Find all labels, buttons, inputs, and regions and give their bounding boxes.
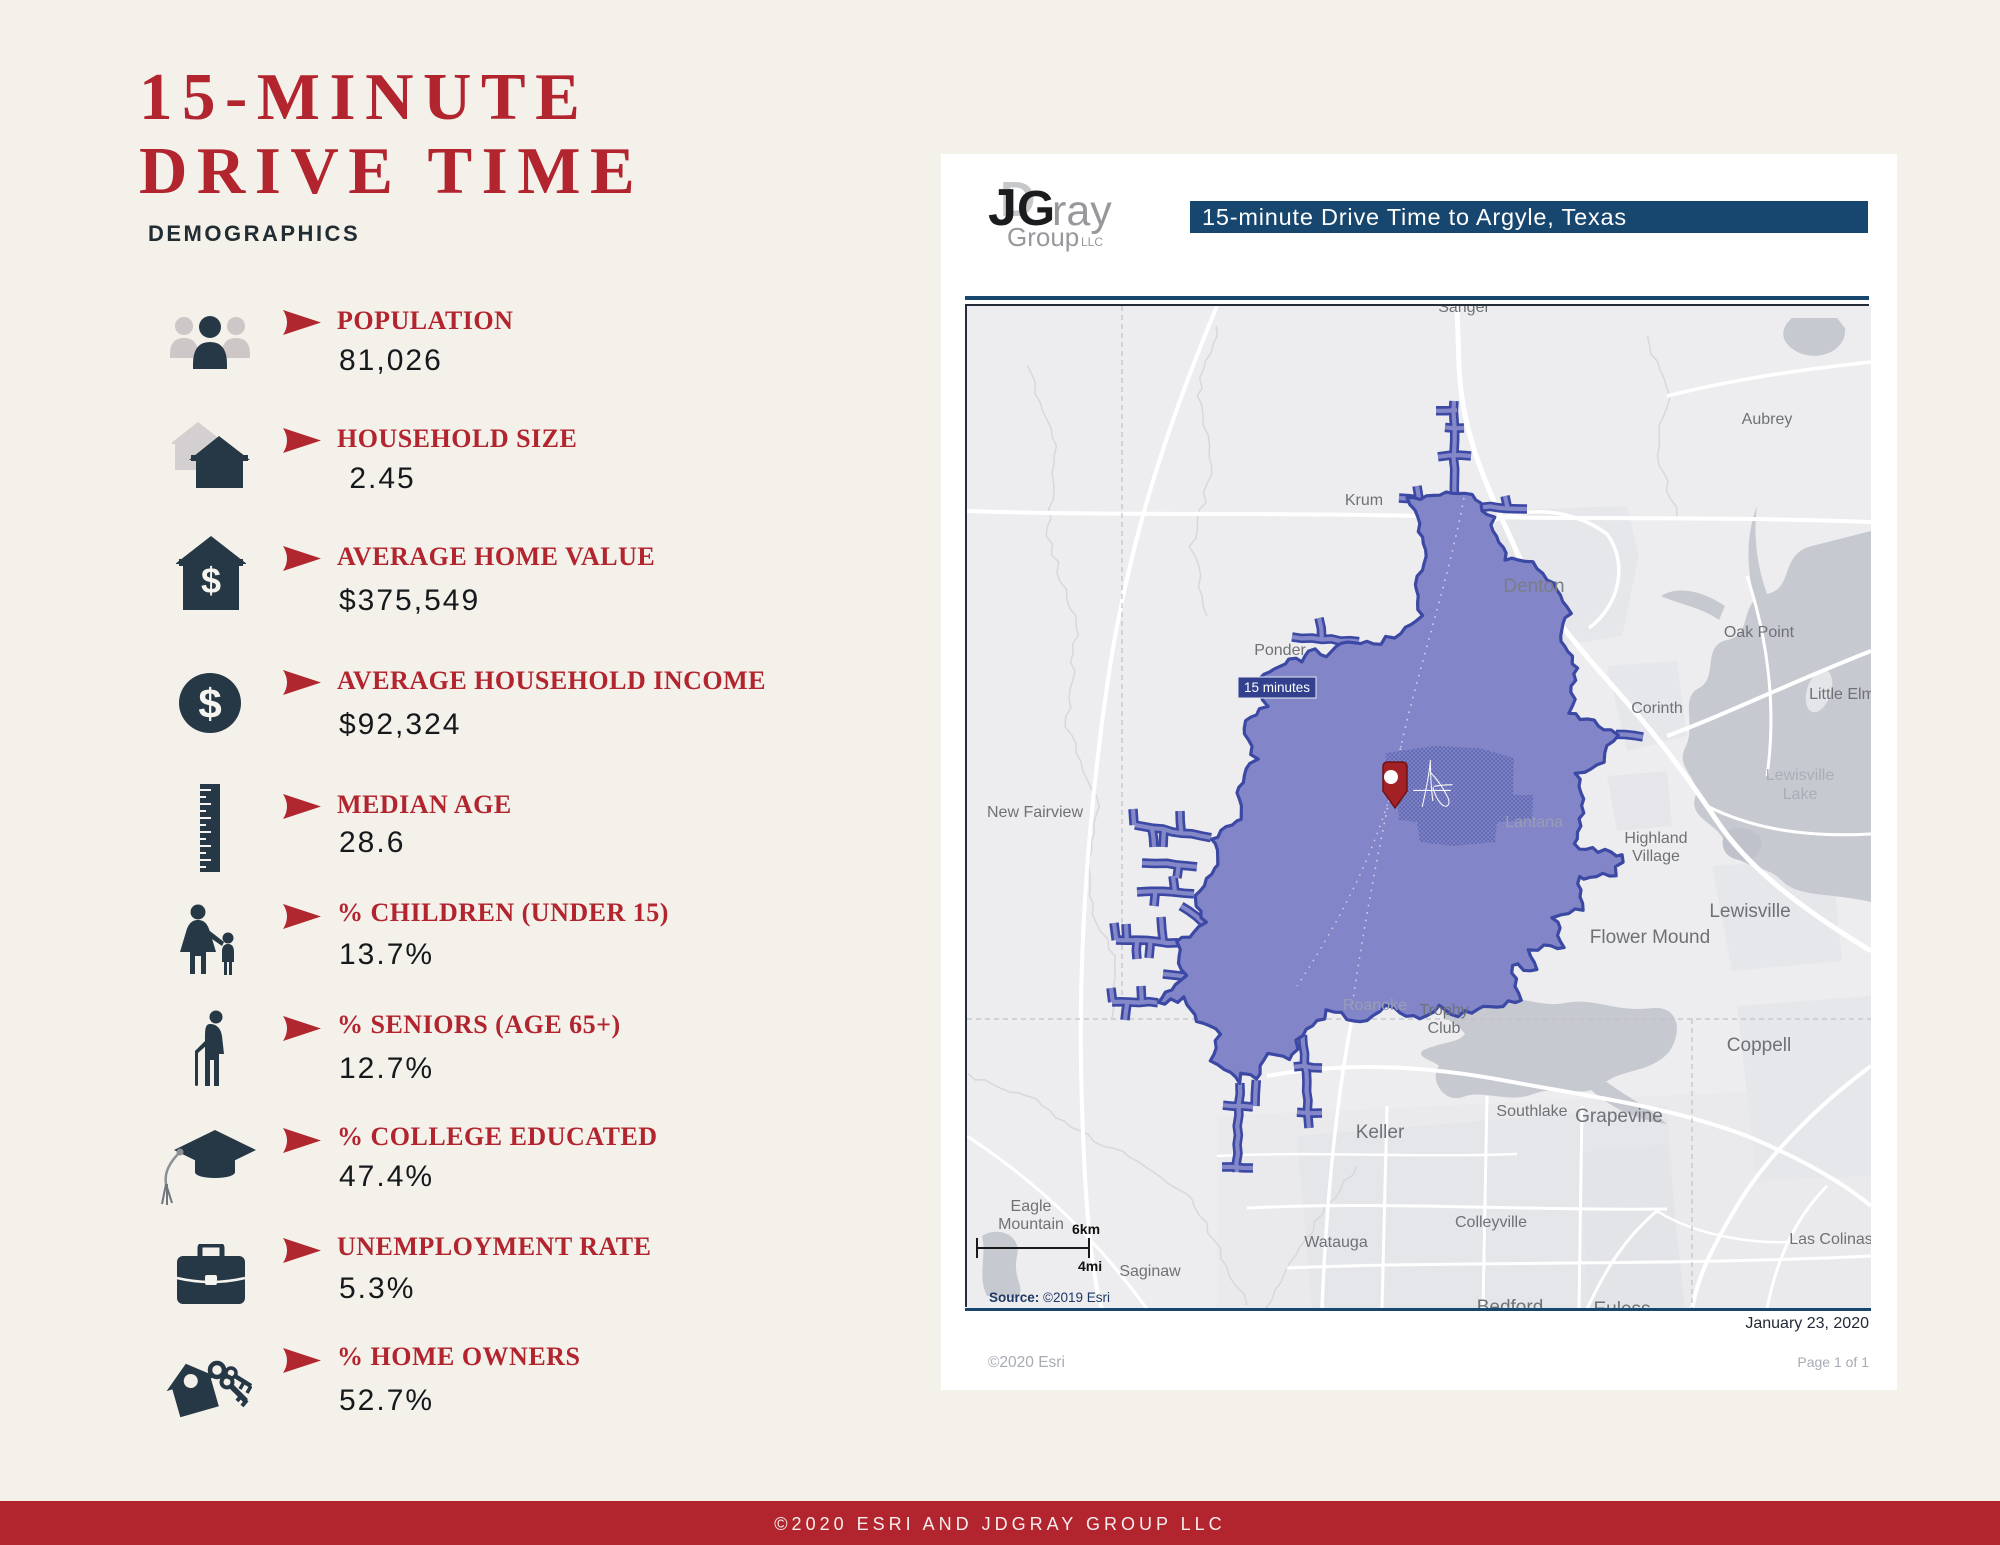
svg-text:$: $ (198, 680, 221, 727)
svg-text:Club: Club (1428, 1020, 1461, 1037)
svg-text:Source: ©2019 Esri: Source: ©2019 Esri (989, 1290, 1110, 1305)
svg-text:Ponder: Ponder (1254, 642, 1306, 659)
svg-text:Aubrey: Aubrey (1742, 411, 1793, 428)
svg-text:Lewisville: Lewisville (1766, 767, 1835, 784)
svg-text:4mi: 4mi (1078, 1258, 1102, 1274)
svg-text:Eagle: Eagle (1011, 1198, 1052, 1215)
svg-text:Lewisville: Lewisville (1709, 901, 1790, 922)
svg-text:Sanger: Sanger (1438, 306, 1490, 316)
svg-text:Coppell: Coppell (1727, 1035, 1791, 1056)
svg-text:Trophy: Trophy (1419, 1002, 1468, 1019)
svg-text:15 minutes: 15 minutes (1244, 680, 1310, 695)
svg-text:Lantana: Lantana (1505, 814, 1563, 831)
svg-text:Lake: Lake (1783, 786, 1818, 803)
svg-text:New Fairview: New Fairview (987, 804, 1083, 821)
svg-text:Highland: Highland (1624, 830, 1687, 847)
svg-text:Grapevine: Grapevine (1575, 1106, 1663, 1127)
svg-text:6km: 6km (1072, 1221, 1100, 1237)
svg-text:Mountain: Mountain (998, 1216, 1064, 1233)
svg-text:Keller: Keller (1356, 1122, 1405, 1143)
svg-text:Southlake: Southlake (1496, 1103, 1567, 1120)
svg-text:Oak Point: Oak Point (1724, 624, 1795, 641)
svg-text:Las Colinas: Las Colinas (1789, 1231, 1871, 1248)
svg-text:$: $ (201, 560, 221, 601)
svg-text:Watauga: Watauga (1304, 1234, 1368, 1251)
svg-text:Saginaw: Saginaw (1119, 1263, 1181, 1280)
svg-text:Colleyville: Colleyville (1455, 1214, 1527, 1231)
svg-text:Krum: Krum (1345, 492, 1383, 509)
svg-text:Flower Mound: Flower Mound (1590, 927, 1710, 948)
svg-text:Little Elm: Little Elm (1809, 686, 1871, 703)
svg-text:Corinth: Corinth (1631, 700, 1683, 717)
svg-text:Roanoke: Roanoke (1343, 997, 1407, 1014)
svg-text:Denton: Denton (1503, 576, 1564, 597)
svg-text:Village: Village (1632, 848, 1680, 865)
